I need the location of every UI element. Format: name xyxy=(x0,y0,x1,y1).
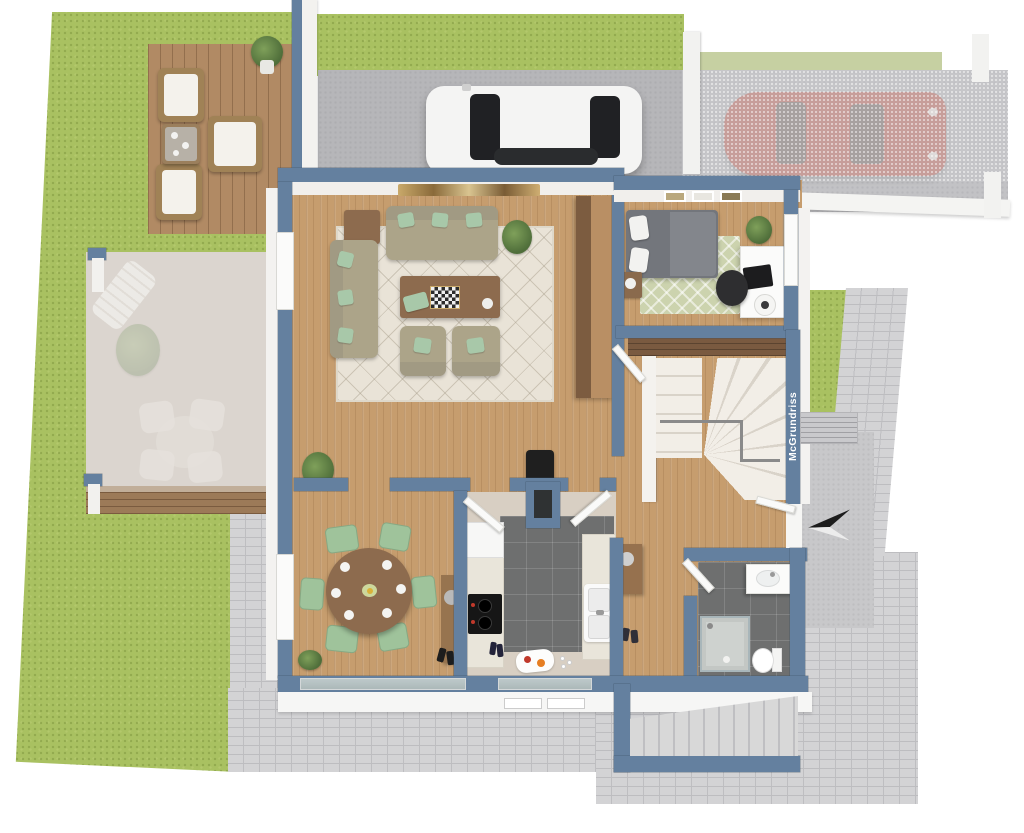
deck-armchair xyxy=(208,116,262,172)
table-decor xyxy=(171,132,178,139)
terrace-post xyxy=(88,484,100,514)
stair-railing xyxy=(660,420,742,423)
plate xyxy=(344,610,354,620)
sofa-pillow xyxy=(465,212,482,228)
chimney-flue xyxy=(534,490,552,518)
watermark: McGrundriss xyxy=(786,346,800,506)
window-sill xyxy=(547,698,585,709)
picture-frame xyxy=(664,191,686,202)
picture-frame xyxy=(720,191,742,202)
shower-head xyxy=(707,623,713,629)
white-car xyxy=(426,86,642,174)
plant-pot xyxy=(260,60,274,74)
stair-railing xyxy=(740,420,743,462)
living-plant xyxy=(502,220,532,254)
checkers-board xyxy=(430,286,460,309)
glassware xyxy=(561,664,566,669)
wall-right-bathroom xyxy=(790,548,805,692)
pet-bowl xyxy=(524,656,531,663)
wall-bathroom-top xyxy=(684,548,807,561)
wall-kitchen-right xyxy=(610,538,623,690)
wall-art xyxy=(398,184,540,196)
cooktop-knob xyxy=(471,620,475,624)
sofa-pillow xyxy=(336,250,354,268)
carport-roof-overlay xyxy=(682,70,1008,182)
pet-bowl xyxy=(537,659,545,667)
burner xyxy=(478,616,492,630)
stair-railing xyxy=(740,459,780,462)
floor-plan: McGrundriss xyxy=(0,0,1024,833)
table-bowl xyxy=(482,298,493,309)
terrace-awning-overlay xyxy=(86,252,284,492)
kitchen-shoes xyxy=(496,644,503,658)
bedroom-plant xyxy=(746,216,772,244)
chair-cushion xyxy=(164,74,198,116)
sink-basin xyxy=(588,588,610,612)
picture-frame xyxy=(692,191,714,202)
plate xyxy=(340,562,350,572)
bed-pillow xyxy=(628,215,649,241)
shower-drain xyxy=(723,656,730,663)
shower xyxy=(700,616,750,672)
wall-living-hall xyxy=(612,188,624,456)
armchair-pillow xyxy=(466,337,485,354)
plate xyxy=(396,584,406,594)
dining-plant xyxy=(298,650,322,670)
dining-chair xyxy=(299,577,325,611)
stairs-upper-flight xyxy=(656,358,702,458)
centerpiece-dot xyxy=(367,588,373,594)
chair-cushion xyxy=(162,170,196,214)
exterior-stairs-wall xyxy=(614,756,800,772)
cooktop-knob xyxy=(471,603,475,607)
cooktop xyxy=(468,594,502,634)
wall-bedroom-bottom xyxy=(616,326,798,338)
table-tray xyxy=(402,291,429,313)
armchair-back xyxy=(400,362,446,376)
armchair xyxy=(452,326,500,376)
bed-pillow xyxy=(628,247,649,273)
plate xyxy=(382,608,392,618)
white-car-side-windows xyxy=(494,148,598,165)
burner xyxy=(478,599,492,613)
dining-chair xyxy=(378,522,412,553)
lawn-top-strip xyxy=(312,14,684,76)
sofa-pillow xyxy=(397,212,415,229)
tall-cabinet xyxy=(576,196,614,398)
cellar-grate xyxy=(800,412,858,444)
bedside-lamp xyxy=(625,278,636,289)
plate xyxy=(331,588,341,598)
wall-top-living xyxy=(278,168,624,182)
sofa-pillow xyxy=(337,327,354,344)
carport-post xyxy=(972,34,989,82)
office-chair xyxy=(716,270,748,306)
toilet-bowl xyxy=(752,648,774,673)
window-sill xyxy=(504,698,542,709)
dining-table xyxy=(326,548,412,634)
vanity-faucet xyxy=(770,572,775,577)
plate xyxy=(382,560,392,570)
window-kitchen-bottom xyxy=(498,678,592,690)
ball-chair-dot xyxy=(761,301,769,309)
dining-chair xyxy=(410,575,437,609)
upper-floor-edge xyxy=(628,336,796,356)
vanity-sink xyxy=(756,570,780,587)
wall-living-bottom xyxy=(294,478,348,491)
table-decor xyxy=(173,150,179,156)
table-top xyxy=(165,127,197,161)
chair-cushion xyxy=(214,122,256,166)
wall-living-bottom xyxy=(600,478,616,491)
privacy-wall xyxy=(292,0,302,188)
white-car-mirror xyxy=(462,84,471,91)
table-decor xyxy=(182,142,189,149)
deck-armchair xyxy=(156,164,202,220)
coffee-table xyxy=(400,276,500,318)
stairs-winder xyxy=(702,358,794,500)
side-table xyxy=(344,210,380,244)
faucet xyxy=(596,610,604,615)
window-dining-bottom xyxy=(300,678,466,690)
wall-bathroom-left xyxy=(684,596,697,678)
armchair-back xyxy=(452,362,500,376)
privacy-wall-face xyxy=(302,0,317,188)
wall-living-bottom xyxy=(390,478,470,491)
wall-top-bedroom xyxy=(614,176,800,190)
glassware xyxy=(560,656,565,661)
wall-dining-kitchen xyxy=(454,491,467,690)
window-living-left xyxy=(276,232,294,310)
carport-post xyxy=(984,172,1001,218)
compass-arrow-dark xyxy=(808,508,850,546)
hall-shoes xyxy=(630,630,638,644)
sofa-pillow xyxy=(431,212,448,228)
window-dining-left xyxy=(276,554,294,640)
carport-post xyxy=(683,32,700,174)
armchair-pillow xyxy=(413,337,432,354)
sofa-pillow xyxy=(337,289,354,306)
sofa xyxy=(386,206,498,260)
sink-basin xyxy=(588,615,610,639)
bed-blanket xyxy=(670,212,716,276)
armchair xyxy=(400,326,446,376)
outdoor-side-table xyxy=(162,124,200,164)
bed xyxy=(626,210,718,278)
terrace-post xyxy=(92,258,104,292)
glassware xyxy=(567,660,572,665)
compass-arrow xyxy=(808,508,850,546)
deck-armchair xyxy=(158,68,204,122)
sofa xyxy=(330,240,378,358)
window-bedroom-right xyxy=(784,214,798,286)
